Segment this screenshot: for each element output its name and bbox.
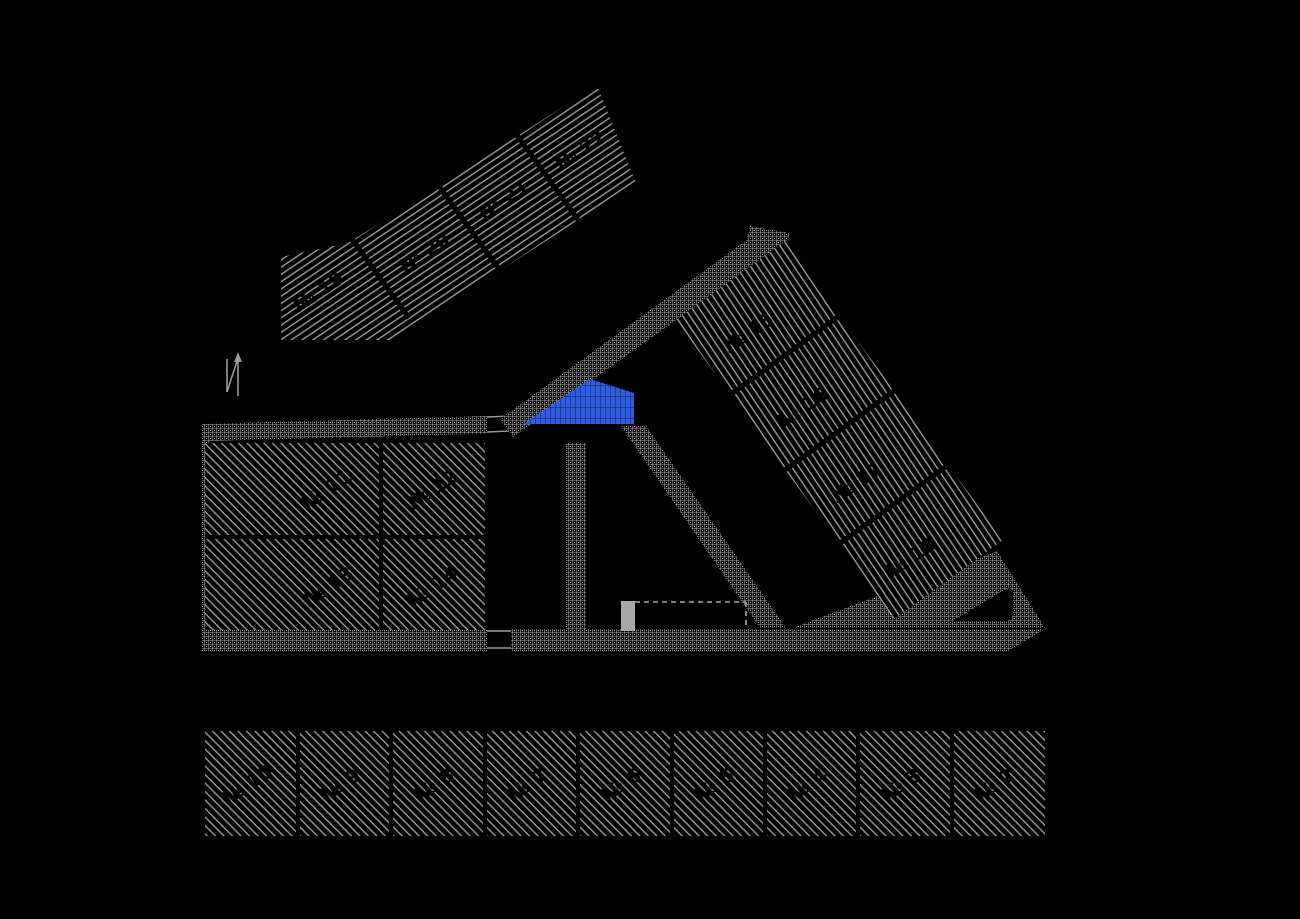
cad-canvas[interactable]: № 19 № 20 № 21 № 22 № xyxy=(0,0,1300,919)
west-parcel-block: № 11 № 12 № 13 № 14 xyxy=(205,443,485,630)
road-lower[interactable] xyxy=(203,629,1045,651)
road-edge-line xyxy=(487,431,511,432)
road-inner-lane[interactable] xyxy=(566,443,586,630)
building-solid-end xyxy=(621,601,635,631)
south-parcel-row: № 10 № 9 № 8 № 7 № 6 № 5 № 4 № 3 № 2 xyxy=(205,731,1045,836)
road-gap xyxy=(487,626,511,654)
site-plan-drawing: № 19 № 20 № 21 № 22 № xyxy=(0,0,1300,919)
